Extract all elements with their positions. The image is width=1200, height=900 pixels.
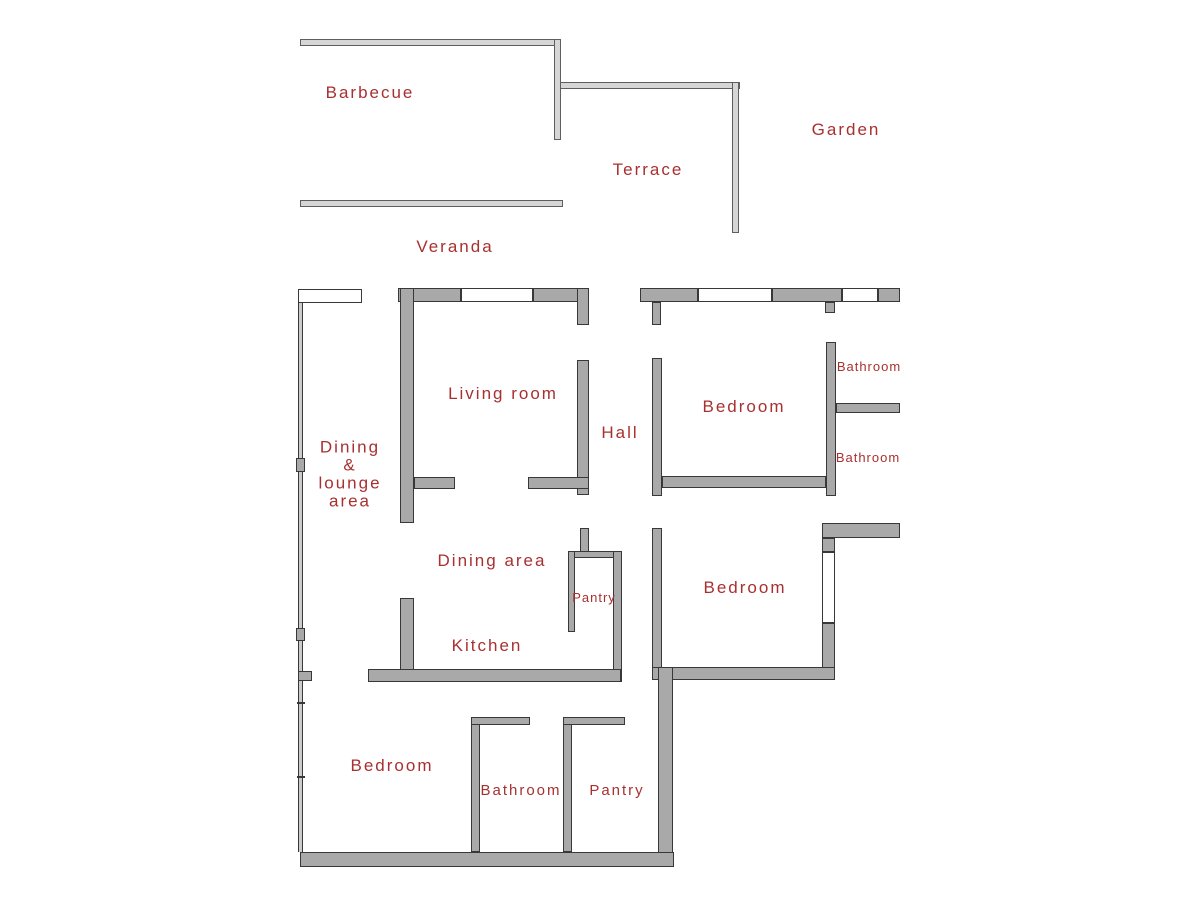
- livingroom-right-wall-lower: [577, 360, 589, 495]
- livingroom-bottom-stub-left: [414, 477, 455, 489]
- barbecue-terrace-connector: [554, 39, 561, 140]
- top-wall-bedroom-2: [772, 288, 842, 302]
- left-outer-wall: [298, 289, 303, 852]
- left-wall-tick-1: [297, 702, 305, 704]
- bedroom-top-left-wall: [652, 358, 662, 496]
- bedroom-top-bottom-wall: [662, 476, 826, 488]
- left-wall-post-1: [296, 458, 305, 472]
- room-label-bedroom-top: Bedroom: [703, 398, 786, 416]
- room-label-bedroom-bottom: Bedroom: [351, 757, 434, 775]
- room-label-garden: Garden: [812, 121, 881, 139]
- room-label-hall: Hall: [601, 424, 638, 442]
- room-label-living-room: Living room: [448, 385, 558, 403]
- room-label-bedroom-mid: Bedroom: [704, 579, 787, 597]
- pantry-bottom-left-wall: [563, 717, 572, 852]
- room-label-veranda: Veranda: [416, 238, 493, 256]
- livingroom-right-wall-upper: [577, 288, 589, 325]
- bathroom-bottom-top-stub: [471, 717, 530, 725]
- room-label-barbecue: Barbecue: [326, 84, 415, 102]
- pantry-mid-door-stub: [580, 528, 589, 553]
- bedroom-mid-bottom-wall: [652, 667, 835, 680]
- bathroom-bottom-left-wall: [471, 717, 480, 852]
- window-bedroom-mid: [822, 552, 835, 623]
- terrace-right-wall: [732, 82, 739, 233]
- window-livingroom: [461, 288, 533, 302]
- room-label-bathroom-mid: Bathroom: [836, 451, 900, 465]
- barbecue-top-wall: [300, 39, 557, 46]
- floor-plan: BarbecueGardenTerraceVerandaLiving roomH…: [0, 0, 1200, 900]
- pantry-mid-right-wall: [613, 551, 622, 682]
- bathrooms-divider-wall: [836, 403, 900, 413]
- bedroom-mid-left-wall: [652, 528, 662, 680]
- veranda-wall: [300, 200, 563, 207]
- room-label-bathroom-top: Bathroom: [837, 360, 901, 374]
- bedroom-top-right-wall: [826, 342, 836, 496]
- window-veranda-door: [298, 289, 362, 303]
- room-label-pantry-mid: Pantry: [572, 591, 616, 605]
- window-bedroom-top-2: [842, 288, 878, 302]
- room-label-kitchen: Kitchen: [452, 637, 523, 655]
- room-label-pantry-bottom: Pantry: [589, 783, 644, 799]
- pantry-bottom-top-stub: [563, 717, 625, 725]
- bedroom-mid-right-wall-upper: [822, 538, 835, 552]
- window-bedroom-top-1: [698, 288, 772, 302]
- hall-lower-wall: [658, 667, 673, 867]
- top-wall-bedroom-3: [878, 288, 900, 302]
- hall-top-stub-left: [652, 302, 661, 325]
- left-wall-post-2: [296, 628, 305, 641]
- left-wall-stub: [298, 671, 312, 681]
- terrace-top-wall: [560, 82, 740, 89]
- bottom-outer-wall: [300, 852, 674, 867]
- room-label-bathroom-bottom: Bathroom: [480, 783, 561, 799]
- bedroom-mid-top-wall: [822, 523, 900, 538]
- left-wall-tick-2: [297, 776, 305, 778]
- kitchen-bottom-wall: [368, 669, 621, 682]
- hall-top-stub-right: [825, 302, 835, 313]
- room-label-dining-lounge: Dining&loungearea: [318, 438, 381, 509]
- room-label-terrace: Terrace: [613, 161, 684, 179]
- top-wall-bedroom-1: [640, 288, 698, 302]
- room-label-dining-area: Dining area: [438, 552, 547, 570]
- livingroom-left-wall: [400, 288, 414, 523]
- livingroom-bottom-stub-right: [528, 477, 589, 489]
